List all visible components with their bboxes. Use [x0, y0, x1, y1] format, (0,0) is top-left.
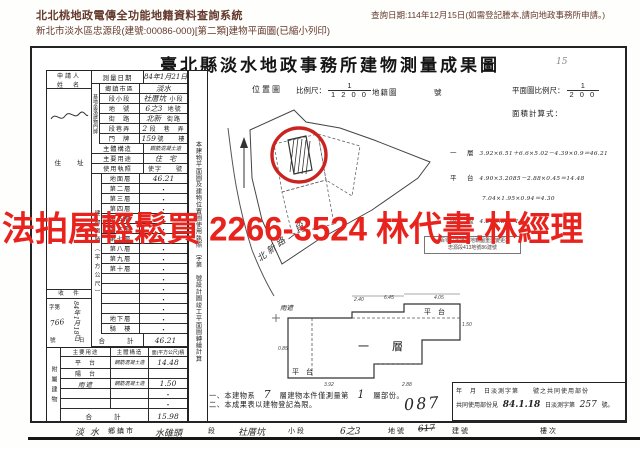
cadastral-map-label: 地籍圖 [372, 87, 398, 98]
attached-row: 雨遮鋼筋混凝土造1.50 [61, 379, 187, 389]
floor-total-value: 46.21 [155, 336, 176, 345]
bottom-lot-handwriting: 6之3 [340, 424, 360, 437]
receipt-title: 收 件 [47, 290, 92, 299]
attached-row: ・ [61, 399, 187, 409]
site-row-label: 段巷弄 [100, 124, 140, 133]
floor-area-rows: 地面層46.21第二層・第三層・第四層・第五層・第六層・第七層・第八層・第九層・… [102, 174, 187, 334]
plan-dim: 0.85 [278, 346, 288, 352]
floor-row-label: 第九層 [102, 254, 140, 263]
site-row-suffix: 小段 [169, 94, 183, 103]
plan-scale: 平面圖比例尺： 12 0 0 [512, 82, 599, 100]
site-row: 街 路北新街路 [100, 114, 187, 124]
floor-row: 騎 樓・ [102, 324, 187, 334]
common-use-row1: 年 月 日淡測字第 號之共同使用部份 [456, 386, 622, 395]
attached-strip-label: 附屬建物 [47, 347, 61, 423]
site-row-handwriting: 159 [142, 134, 156, 143]
attached-total-value: 15.98 [157, 412, 178, 421]
attached-row-use: 雨遮 [61, 379, 111, 388]
site-row-value: 淡水 [140, 84, 187, 93]
floor-area-dot: ・ [160, 304, 167, 313]
attached-area-handwriting: 14.48 [157, 358, 178, 367]
attached-row-area: ・ [149, 399, 187, 408]
site-row-label: 段小段 [100, 94, 140, 103]
cadastral-map-no-label: 號 [434, 87, 442, 98]
structure-value: 鋼筋混凝土造 [150, 145, 181, 152]
common-use-date-handwriting: 84.1.18 [500, 400, 544, 410]
site-row-handwriting: 2 [142, 124, 147, 133]
floor-row-label [102, 284, 140, 293]
site-row-handwriting: 6之3 [145, 104, 162, 113]
formula-first-floor: 3.92×6.51＋6.6×5.02－4.39×0.9＝46.21 [480, 151, 609, 157]
receipt-no-prefix: 字第 [49, 303, 60, 311]
plan-dim: 6.45 [384, 295, 394, 301]
survey-date-value: 84年1月21日 [144, 72, 187, 82]
floor-row-value: ・ [140, 254, 187, 263]
site-strip-label: 基地坐落建物門牌 [92, 84, 100, 144]
floor-row: ・ [102, 274, 187, 284]
attached-row: 陽 台 [61, 369, 187, 379]
applicant-signature-scribble [49, 109, 89, 125]
attached-row-area: ・ [149, 389, 187, 398]
attached-row-structure [111, 389, 149, 398]
plan-rain-cover-label: 雨遮 [280, 304, 295, 312]
floor-area-dot: ・ [160, 284, 167, 293]
floor-row-value: ・ [140, 314, 187, 323]
floor-plan: 雨遮 平 台 一 層 平 台 2.40 6.45 4.05 1.50 0.85 … [256, 288, 474, 388]
attached-row-structure [111, 369, 149, 378]
receipt-no-suffix: 號 [50, 336, 56, 344]
floor-row: 第二層・ [102, 184, 187, 194]
common-use-box: 年 月 日淡測字第 號之共同使用部份 共同使用部份見 84.1.18 日淡測字第… [452, 382, 626, 421]
location-map-scale: 比例尺： 11 2 0 0 [296, 82, 371, 100]
site-row-value: 159號 樓 [140, 134, 187, 143]
attached-header-row: 主要用途 主體構造 面(平方公尺)積 [61, 347, 187, 357]
address-label: 住 址 [47, 157, 92, 167]
floor-row: ・ [102, 294, 187, 304]
attached-row-use [61, 389, 111, 398]
floor-row-label: 騎 樓 [102, 324, 140, 333]
floor-row: ・ [102, 304, 187, 314]
floor-area-strip-label: 建物面積（平方公尺） [92, 174, 102, 334]
usage-row: 主要用途 住 宅 [92, 154, 187, 164]
floor-row: 地下層・ [102, 314, 187, 324]
attached-area-dot: ・ [165, 399, 172, 408]
site-row: 門 牌159號 樓 [100, 134, 187, 144]
site-row-value: 北新街路 [140, 114, 187, 123]
floor-area-dot: ・ [160, 294, 167, 303]
floor-row: ・ [102, 284, 187, 294]
attached-area-handwriting: 1.50 [160, 379, 177, 388]
attached-row-use [61, 399, 111, 408]
attached-use-text: 平 台 [75, 358, 96, 367]
structure-row: 主體構造 鋼筋混凝土造 [92, 144, 187, 154]
red-highlight-circle [272, 128, 326, 182]
handwritten-number: 087 [403, 393, 441, 415]
floor-row-label: 第二層 [102, 184, 140, 193]
floor-row: 第九層・ [102, 254, 187, 264]
floor-area-dot: ・ [160, 324, 167, 333]
floor-row-value: ・ [140, 324, 187, 333]
document-subtitle: 新北市淡水區忠源段(建號:00086-000)[第二類]建物平面圖(已縮小列印) [36, 23, 330, 37]
note-measured-floor-handwriting: 1 [351, 388, 371, 401]
survey-date-row: 測量日期 84年1月21日 [92, 71, 187, 84]
site-row-handwriting: 北新 [146, 114, 161, 123]
site-row-value: 6之3地號 [140, 104, 187, 113]
floor-area-dot: ・ [160, 254, 167, 263]
attached-rows: 平 台鋼筋混凝土造14.48陽 台雨遮鋼筋混凝土造1.50・・ [61, 357, 187, 409]
floor-area-handwriting: 46.21 [153, 174, 174, 183]
floor-total-row: 合 計 46.21 [92, 334, 187, 347]
floor-row-label: 地面層 [102, 174, 140, 183]
red-watermark: 法拍屋輕鬆買 2266-3524 林代書.林經理 [2, 201, 583, 251]
survey-date-label: 測量日期 [92, 71, 144, 83]
attached-row-area: 1.50 [149, 379, 187, 388]
location-map-label: 位置圖 [252, 84, 282, 95]
common-use-no-handwriting: 257 [577, 400, 600, 410]
system-title: 北北桃地政電傳全功能地籍資料查詢系統 [36, 7, 243, 23]
attached-row-area [149, 369, 187, 378]
site-row: 段巷弄2段 巷 弄 [100, 124, 187, 134]
receipt-box: 收 件 字第 84年1月18日 766 號 日 [47, 289, 92, 347]
plan-dim: 1.50 [462, 322, 472, 328]
floor-row-label [102, 274, 140, 283]
receipt-day-label: 日 [79, 336, 85, 344]
floor-row-value: 46.21 [140, 174, 187, 183]
plan-first-floor-label: 一 層 [358, 340, 409, 353]
site-rows: 鄉鎮市區淡水段小段社厝坑小段地 號6之3地號街 路北新街路段巷弄2段 巷 弄門 … [100, 84, 187, 144]
attached-row-structure [111, 399, 149, 408]
site-row-suffix: 號 樓 [157, 134, 185, 143]
floor-row-value: ・ [140, 304, 187, 313]
site-row-label: 地 號 [100, 104, 140, 113]
site-row-suffix: 地號 [168, 104, 182, 113]
note-line-2: 二、本成果表以建物登記為限。 [209, 400, 317, 410]
plan-platform-top-label: 平 台 [424, 307, 445, 316]
attached-use-text: 陽 台 [75, 369, 96, 378]
bottom-crossed-out-number: 617 [418, 423, 436, 434]
floor-row-label: 地下層 [102, 314, 140, 323]
attached-area-dot: ・ [165, 389, 172, 398]
attached-structure-handwriting: 鋼筋混凝土造 [114, 380, 144, 387]
site-row-handwriting: 淡水 [156, 84, 171, 93]
floor-row-label: 第十層 [102, 264, 140, 273]
site-row: 地 號6之3地號 [100, 104, 187, 114]
usage-value: 住 宅 [155, 154, 176, 163]
license-value: 使字 號 [144, 164, 187, 173]
bottom-rule [28, 437, 640, 440]
attached-row-area: 14.48 [149, 357, 187, 368]
site-row: 段小段社厝坑小段 [100, 94, 187, 104]
attached-row: 平 台鋼筋混凝土造14.48 [61, 357, 187, 369]
formula-platform: 4.90×3.2085－2.88×0.45＝14.48 [480, 176, 585, 182]
attached-row-use: 平 台 [61, 357, 111, 368]
attached-row-structure: 鋼筋混凝土造 [111, 379, 149, 388]
floor-row-value: ・ [140, 284, 187, 293]
floor-area-dot: ・ [160, 314, 167, 323]
north-arrow [240, 137, 248, 148]
plan-platform-bottom-label: 平 台 [292, 367, 313, 376]
attached-row-structure: 鋼筋混凝土造 [111, 357, 149, 368]
floor-row-value: ・ [140, 274, 187, 283]
site-row-label: 門 牌 [100, 134, 140, 143]
query-date: 查詢日期:114年12月15日(如需登記謄本,請向地政事務所申請。) [371, 9, 605, 21]
site-row: 鄉鎮市區淡水 [100, 84, 187, 94]
plan-dim: 4.05 [434, 295, 444, 301]
floor-row: 第十層・ [102, 264, 187, 274]
floor-row-value: ・ [140, 184, 187, 193]
attached-row-use: 陽 台 [61, 369, 111, 378]
attached-use-text: 雨遮 [78, 379, 93, 389]
pencil-mark: 15 [556, 57, 567, 67]
site-row-label: 街 路 [100, 114, 140, 123]
floor-area-dot: ・ [160, 184, 167, 193]
floor-area-dot: ・ [160, 264, 167, 273]
bottom-parcel-row: 淡水 鄉鎮市 水碓頭 段 社厝坑 小段 6之3 地號 617 建號 樓次 [30, 424, 640, 437]
common-use-row2: 共同使用部份見 84.1.18 日淡測字第 257 號。 [456, 400, 622, 410]
floor-row: 地面層46.21 [102, 174, 187, 184]
site-row-suffix: 段 巷 弄 [150, 124, 185, 133]
floor-row-value: ・ [140, 294, 187, 303]
floor-row-label [102, 304, 140, 313]
site-row-handwriting: 社厝坑 [143, 94, 166, 103]
attached-total-row: 合 計 15.98 [61, 409, 187, 423]
site-row-value: 2段 巷 弄 [140, 124, 187, 133]
license-row: 使用執照 使字 號 [92, 164, 187, 174]
plan-dim: 2.40 [353, 297, 364, 303]
applicant-label: 申請人 姓 名 [47, 71, 91, 89]
site-row-value: 社厝坑小段 [140, 94, 187, 103]
floor-area-dot: ・ [160, 274, 167, 283]
floor-row-label [102, 294, 140, 303]
receipt-number-handwriting: 766 [49, 317, 64, 328]
attached-row: ・ [61, 389, 187, 399]
land-registry-query-page: 北北桃地政電傳全功能地籍資料查詢系統 新北市淡水區忠源段(建號:00086-00… [0, 0, 640, 449]
site-row-label: 鄉鎮市區 [100, 84, 140, 93]
floor-row-value: ・ [140, 264, 187, 273]
area-calc-label: 面積計算式： [512, 108, 563, 119]
site-row-suffix: 街路 [167, 114, 181, 123]
attached-structure-handwriting: 鋼筋混凝土造 [114, 359, 144, 366]
